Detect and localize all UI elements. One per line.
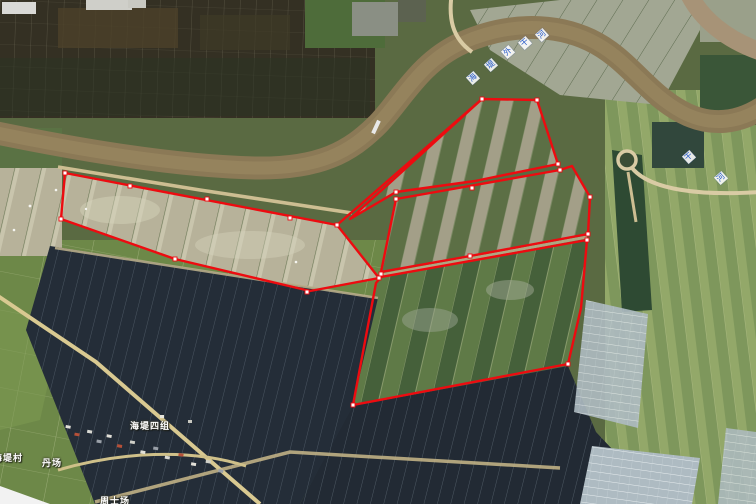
vertex-handle[interactable]	[335, 223, 339, 227]
parcel-annotation-layer[interactable]	[0, 0, 756, 504]
vertex-handle[interactable]	[305, 290, 309, 294]
vertex-handle[interactable]	[377, 276, 381, 280]
vertex-handle[interactable]	[173, 257, 177, 261]
parcel-shared-edge[interactable]	[337, 99, 482, 225]
vertex-handle[interactable]	[351, 403, 355, 407]
vertex-handle[interactable]	[470, 186, 474, 190]
vertex-handle[interactable]	[63, 171, 67, 175]
vertex-handle[interactable]	[558, 168, 562, 172]
vertex-handle[interactable]	[468, 254, 472, 258]
vertex-handle[interactable]	[205, 197, 209, 201]
vertex-handle[interactable]	[585, 238, 589, 242]
satellite-map: 海堤四组 海堤村 丹场 周士场 海堤外干河 干河	[0, 0, 756, 504]
vertex-handle[interactable]	[128, 184, 132, 188]
vertex-handle[interactable]	[586, 232, 590, 236]
vertex-handle[interactable]	[566, 362, 570, 366]
vertex-handle[interactable]	[394, 190, 398, 194]
vertex-handle[interactable]	[288, 216, 292, 220]
vertex-handle[interactable]	[480, 97, 484, 101]
vertex-handle[interactable]	[535, 98, 539, 102]
north-triangle-parcel[interactable]	[350, 99, 558, 219]
south-parcel[interactable]	[353, 240, 587, 405]
vertex-handle[interactable]	[379, 272, 383, 276]
vertex-handle[interactable]	[556, 162, 560, 166]
middle-parcel[interactable]	[381, 166, 590, 272]
vertex-handle[interactable]	[59, 217, 63, 221]
vertex-handle[interactable]	[394, 197, 398, 201]
vertex-handle[interactable]	[588, 195, 592, 199]
west-pond-parcel[interactable]	[61, 173, 379, 291]
